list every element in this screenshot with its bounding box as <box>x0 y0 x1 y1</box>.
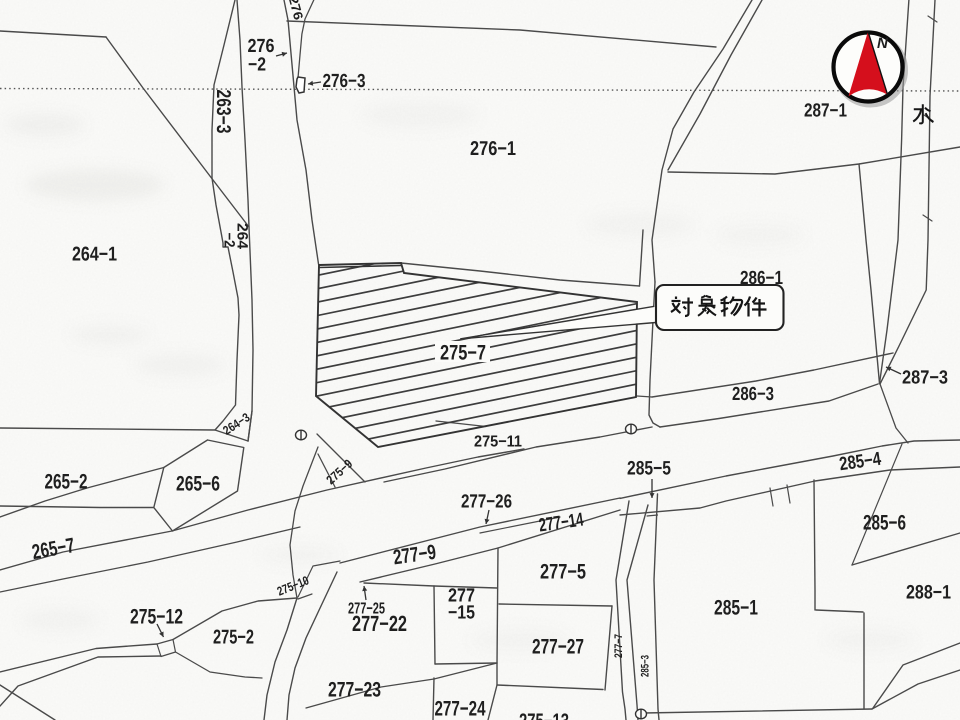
svg-text:277−23: 277−23 <box>328 679 381 702</box>
svg-text:285−6: 285−6 <box>863 512 906 535</box>
svg-text:264−1: 264−1 <box>72 244 117 266</box>
svg-text:287−3: 287−3 <box>902 368 948 389</box>
svg-text:265−6: 265−6 <box>176 473 220 496</box>
svg-text:−2: −2 <box>248 55 266 76</box>
svg-text:265−2: 265−2 <box>45 471 88 494</box>
svg-text:285−1: 285−1 <box>714 597 758 620</box>
svg-text:−2: −2 <box>221 233 238 248</box>
svg-text:277−27: 277−27 <box>532 636 584 659</box>
svg-text:−15: −15 <box>448 603 475 624</box>
svg-text:276−3: 276−3 <box>323 71 366 92</box>
svg-text:288−1: 288−1 <box>906 582 951 604</box>
svg-text:263−3: 263−3 <box>212 90 234 134</box>
svg-text:275−7: 275−7 <box>440 342 486 365</box>
svg-text:277−5: 277−5 <box>540 561 586 584</box>
svg-text:286−1: 286−1 <box>740 268 783 289</box>
svg-text:277−7: 277−7 <box>613 634 625 658</box>
svg-text:286−3: 286−3 <box>732 384 774 405</box>
svg-text:277−22: 277−22 <box>352 611 407 636</box>
svg-text:287−1: 287−1 <box>804 101 847 122</box>
svg-text:285−5: 285−5 <box>627 458 671 480</box>
svg-text:277−26: 277−26 <box>461 492 512 513</box>
svg-text:285−3: 285−3 <box>640 655 652 677</box>
svg-text:275−2: 275−2 <box>213 627 254 649</box>
svg-text:N: N <box>877 35 889 52</box>
svg-text:275−12: 275−12 <box>130 606 183 629</box>
svg-text:276−1: 276−1 <box>470 138 516 160</box>
svg-text:275−13: 275−13 <box>519 710 569 720</box>
svg-text:275−11: 275−11 <box>474 434 522 451</box>
svg-text:277−24: 277−24 <box>435 698 486 720</box>
